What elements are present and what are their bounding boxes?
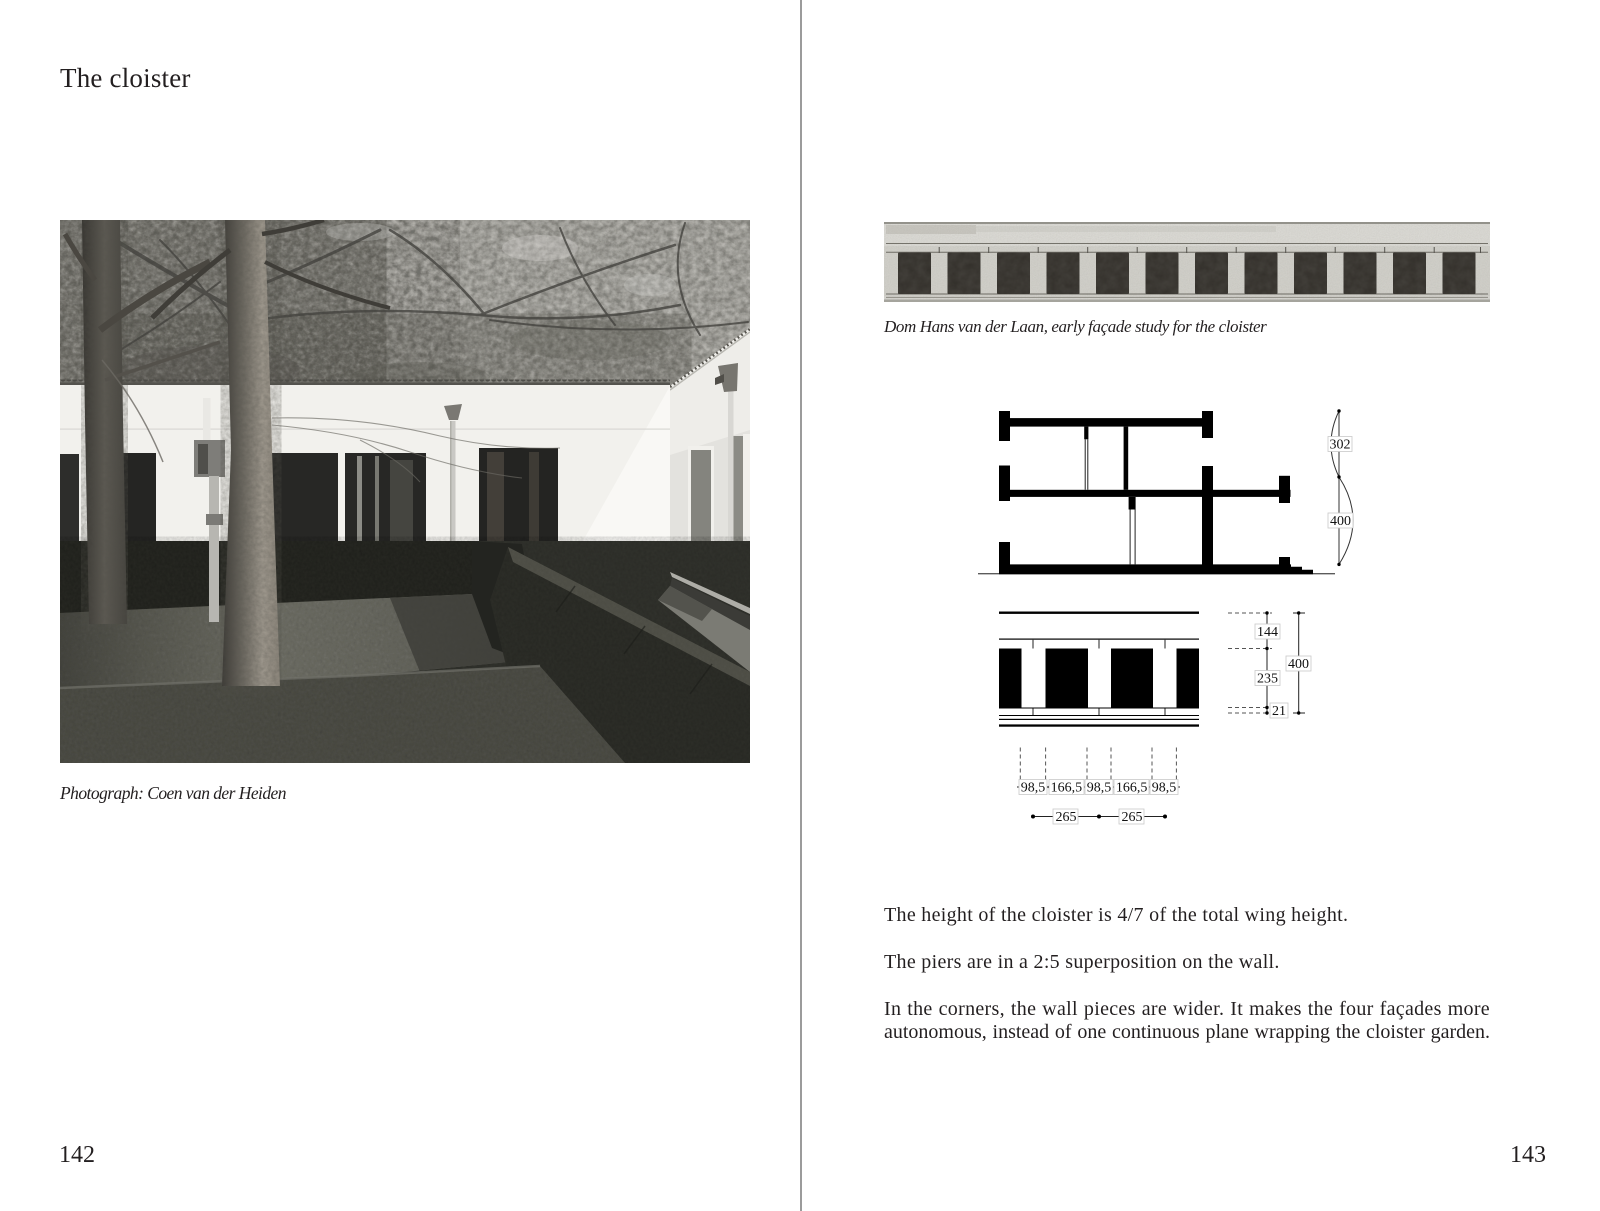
svg-text:400: 400 bbox=[1330, 514, 1351, 529]
svg-text:235: 235 bbox=[1257, 672, 1278, 687]
svg-text:21: 21 bbox=[1272, 704, 1286, 719]
svg-text:166,5: 166,5 bbox=[1116, 781, 1148, 796]
svg-text:98,5: 98,5 bbox=[1152, 781, 1177, 796]
svg-text:265: 265 bbox=[1122, 810, 1143, 825]
svg-text:98,5: 98,5 bbox=[1021, 781, 1046, 796]
svg-text:144: 144 bbox=[1257, 625, 1278, 640]
svg-text:265: 265 bbox=[1056, 810, 1077, 825]
svg-text:166,5: 166,5 bbox=[1051, 781, 1083, 796]
svg-text:400: 400 bbox=[1288, 657, 1309, 672]
svg-text:98,5: 98,5 bbox=[1087, 781, 1112, 796]
svg-text:302: 302 bbox=[1330, 438, 1351, 453]
